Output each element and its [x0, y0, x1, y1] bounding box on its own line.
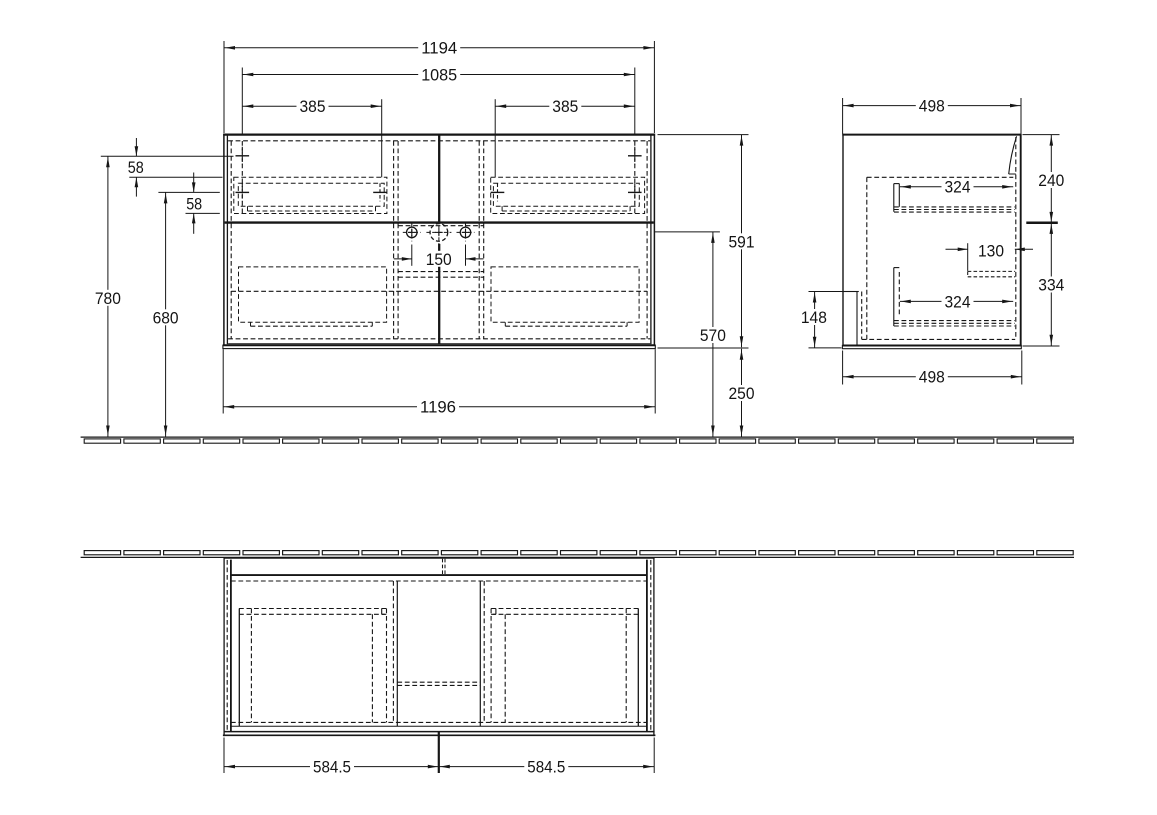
svg-text:334: 334 — [1038, 276, 1064, 295]
svg-text:58: 58 — [128, 158, 144, 177]
svg-text:591: 591 — [729, 232, 755, 251]
svg-text:58: 58 — [186, 195, 202, 214]
svg-text:570: 570 — [700, 326, 726, 345]
svg-text:150: 150 — [426, 250, 452, 269]
svg-text:324: 324 — [945, 178, 971, 197]
svg-text:148: 148 — [801, 308, 827, 327]
svg-text:780: 780 — [95, 289, 121, 308]
svg-text:385: 385 — [300, 97, 326, 116]
svg-text:250: 250 — [729, 384, 755, 403]
svg-text:240: 240 — [1038, 171, 1064, 190]
svg-text:498: 498 — [919, 368, 945, 387]
svg-text:324: 324 — [945, 293, 971, 312]
svg-text:498: 498 — [919, 96, 945, 115]
svg-text:680: 680 — [153, 308, 179, 327]
svg-text:385: 385 — [552, 97, 578, 116]
svg-text:130: 130 — [978, 241, 1004, 260]
svg-text:584.5: 584.5 — [527, 757, 565, 776]
svg-text:584.5: 584.5 — [313, 757, 351, 776]
svg-text:1194: 1194 — [421, 39, 457, 58]
svg-text:1196: 1196 — [420, 398, 456, 417]
svg-text:1085: 1085 — [421, 65, 457, 84]
